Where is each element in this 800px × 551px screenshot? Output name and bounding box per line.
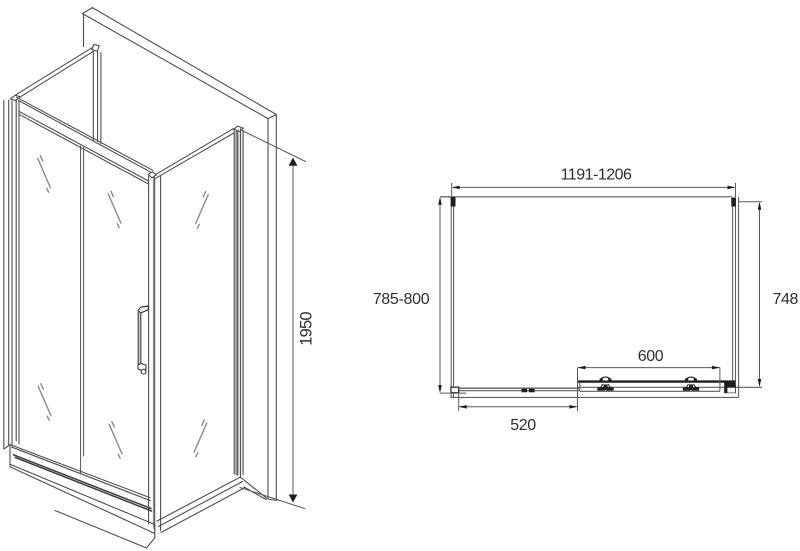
svg-text:520: 520	[510, 417, 536, 434]
svg-text:1950: 1950	[297, 312, 315, 346]
svg-text:785-800: 785-800	[373, 291, 430, 308]
svg-text:600: 600	[638, 348, 664, 365]
svg-text:1191-1206: 1191-1206	[561, 167, 632, 184]
svg-text:748: 748	[773, 291, 799, 308]
